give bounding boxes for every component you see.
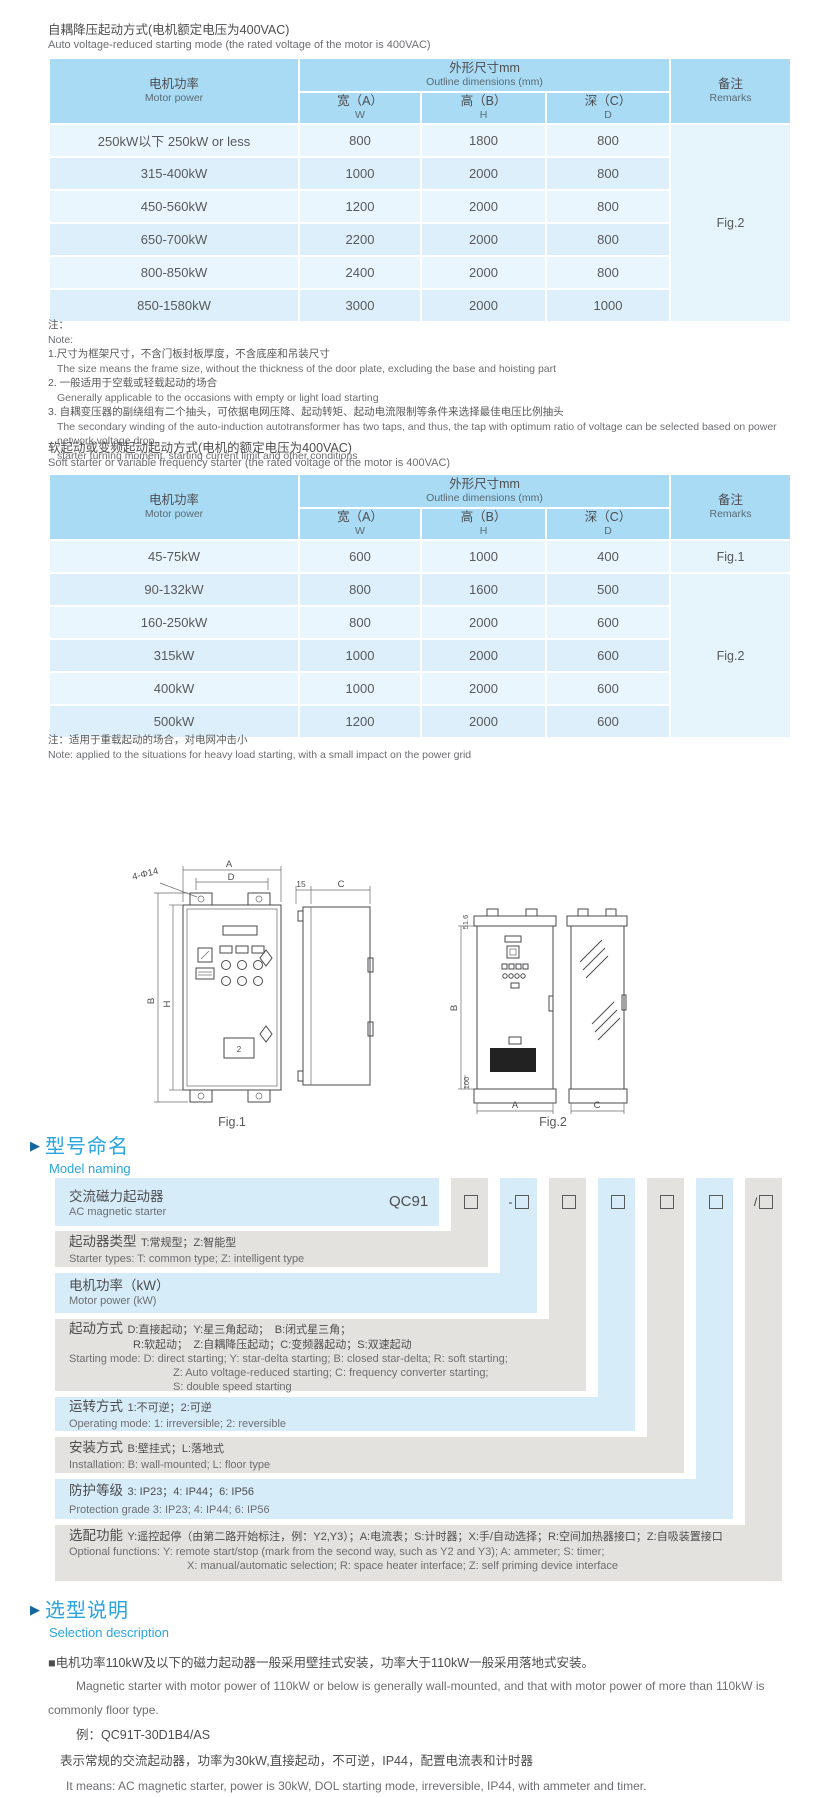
selection-heading-en: Selection description xyxy=(49,1625,800,1640)
model-row-protection-grade: 防护等级 3: IP23；4: IP44；6: IP56 Protection … xyxy=(55,1479,733,1519)
code-box-icon xyxy=(464,1195,478,1209)
section1-title-cn: 自耦降压起动方式(电机额定电压为400VAC) xyxy=(48,22,431,38)
model-naming-heading-en: Model naming xyxy=(49,1161,131,1176)
header-remarks: 备注 Remarks xyxy=(670,474,791,540)
header-outline: 外形尺寸mm Outline dimensions (mm) xyxy=(299,58,670,92)
svg-text:100: 100 xyxy=(462,1077,471,1090)
section2-title-en: Soft starter or variable frequency start… xyxy=(48,456,450,471)
note-item: 1.尺寸为框架尺寸，不含门板封板厚度，不含底座和吊装尺寸 xyxy=(48,347,798,362)
note2-en: Note: applied to the situations for heav… xyxy=(48,748,798,763)
product-name-cn: 交流磁力起动器 xyxy=(69,1182,439,1205)
table-header-row: 电机功率 Motor power 外形尺寸mm Outline dimensio… xyxy=(49,58,791,92)
header-height: 高（B）H xyxy=(421,92,546,124)
note-item: The size means the frame size, without t… xyxy=(48,362,798,377)
fig2-side-view: C xyxy=(567,909,627,1114)
svg-text:15: 15 xyxy=(296,879,306,889)
model-row-optional-functions: 选配功能 Y:遥控起停（由第二路开始标注，例：Y2,Y3）；A:电流表；S:计时… xyxy=(55,1525,782,1581)
code-box-icon xyxy=(709,1195,723,1209)
square-bullet-icon: ■ xyxy=(48,1656,56,1670)
fig2-label: Fig.2 xyxy=(539,1115,567,1129)
model-naming-heading-cn: 型号命名 xyxy=(45,1136,129,1158)
model-row-installation: 安装方式 B:壁挂式；L:落地式 Installation: B: wall-m… xyxy=(55,1437,684,1473)
code-box-1 xyxy=(451,1178,488,1226)
selection-p1-cn: ■电机功率110kW及以下的磁力起动器一般采用壁挂式安装，功率大于110kW一般… xyxy=(48,1652,800,1674)
note-label-cn: 注： xyxy=(48,318,798,333)
header-height: 高（B）H xyxy=(421,508,546,540)
code-box-icon xyxy=(611,1195,625,1209)
soft-starter-dimensions-table: 电机功率 Motor power 外形尺寸mm Outline dimensio… xyxy=(48,473,792,739)
selection-p1-en: Magnetic starter with motor power of 110… xyxy=(48,1674,800,1722)
note-item: 3. 自耦变压器的副绕组有二个抽头，可依据电网压降、起动转矩、起动电流限制等条件… xyxy=(48,405,798,420)
model-code-stripe xyxy=(696,1178,733,1519)
selection-p2-cn: 表示常规的交流起动器，功率为30kW,直接起动，不可逆，IP44，配置电流表和计… xyxy=(60,1749,800,1774)
selection-heading-cn: 选型说明 xyxy=(45,1600,129,1622)
svg-text:B: B xyxy=(449,1005,460,1011)
remark-fig1: Fig.1 xyxy=(670,540,791,573)
table-header-row: 电机功率 Motor power 外形尺寸mm Outline dimensio… xyxy=(49,474,791,508)
note-label-en: Note: xyxy=(48,333,798,348)
code-box-6 xyxy=(696,1178,733,1226)
auto-reduced-dimensions-table: 电机功率 Motor power 外形尺寸mm Outline dimensio… xyxy=(48,57,792,323)
svg-text:C: C xyxy=(594,1100,601,1111)
svg-text:H: H xyxy=(162,1000,173,1007)
section2-title: 软起动或变频起动起动方式(电机的额定电压为400VAC) Soft starte… xyxy=(48,440,450,471)
model-naming-heading: ▶型号命名 Model naming xyxy=(30,1130,131,1176)
svg-text:51.6: 51.6 xyxy=(461,915,470,930)
header-depth: 深（C）D xyxy=(546,508,670,540)
code-box-icon xyxy=(759,1195,773,1209)
table-row: 250kW以下 250kW or less 800 1800 800 Fig.2 xyxy=(49,124,791,157)
selection-example: 例：QC91T-30D1B4/AS xyxy=(76,1722,800,1749)
model-row-starter-type: 起动器类型 T:常规型；Z:智能型 Starter types: T: comm… xyxy=(55,1231,488,1267)
svg-text:C: C xyxy=(338,879,345,890)
code-box-icon xyxy=(515,1195,529,1209)
triangle-bullet-icon: ▶ xyxy=(30,1138,40,1153)
table-row: 45-75kW 600 1000 400 Fig.1 xyxy=(49,540,791,573)
code-box-2: - xyxy=(500,1178,537,1226)
selection-p2-en: It means: AC magnetic starter, power is … xyxy=(66,1774,800,1797)
svg-text:4-Φ14: 4-Φ14 xyxy=(131,866,159,883)
svg-text:A: A xyxy=(226,859,233,870)
code-box-5 xyxy=(647,1178,684,1226)
code-box-icon xyxy=(660,1195,674,1209)
note-item: 2. 一般适用于空载或轻载起动的场合 xyxy=(48,376,798,391)
section1-title: 自耦降压起动方式(电机额定电压为400VAC) Auto voltage-red… xyxy=(48,22,431,53)
svg-text:D: D xyxy=(228,872,235,883)
code-box-7: / xyxy=(745,1178,782,1226)
header-remarks: 备注 Remarks xyxy=(670,58,791,124)
product-name-en: AC magnetic starter xyxy=(69,1205,439,1219)
header-motor-power: 电机功率 Motor power xyxy=(49,474,299,540)
header-motor-power: 电机功率 Motor power xyxy=(49,58,299,124)
note-item: Generally applicable to the occasions wi… xyxy=(48,391,798,406)
header-width: 宽（A）W xyxy=(299,508,421,540)
section2-title-cn: 软起动或变频起动起动方式(电机的额定电压为400VAC) xyxy=(48,440,450,456)
svg-text:A: A xyxy=(512,1100,519,1111)
model-product-row: 交流磁力起动器 AC magnetic starter xyxy=(55,1178,439,1226)
selection-section: ▶选型说明 Selection description ■电机功率110kW及以… xyxy=(30,1594,800,1797)
model-row-starting-mode: 起动方式 D:直接起动；Y:星三角起动； B:闭式星三角； R:软起动； Z:自… xyxy=(55,1319,586,1391)
header-width: 宽（A）W xyxy=(299,92,421,124)
triangle-bullet-icon: ▶ xyxy=(30,1602,40,1617)
code-box-3 xyxy=(549,1178,586,1226)
fig1-side-view: 15 C xyxy=(296,879,373,1085)
fig1-label: Fig.1 xyxy=(218,1115,246,1129)
svg-text:B: B xyxy=(146,998,157,1004)
datasheet-page: 自耦降压起动方式(电机额定电压为400VAC) Auto voltage-red… xyxy=(0,0,830,1797)
outline-drawings: A D 4-Φ14 2 xyxy=(0,790,830,1135)
remark-fig2: Fig.2 xyxy=(670,124,791,322)
fig2-front-view: 51.6 B 100 A xyxy=(449,909,556,1114)
model-code-stripe xyxy=(745,1178,782,1581)
model-row-motor-power: 电机功率（kW） Motor power (kW) xyxy=(55,1273,537,1313)
note2-cn: 注：适用于重载起动的场合，对电网冲击小 xyxy=(48,733,798,748)
model-code: QC91 xyxy=(389,1193,428,1210)
header-depth: 深（C）D xyxy=(546,92,670,124)
svg-text:2: 2 xyxy=(237,1045,242,1054)
code-box-4 xyxy=(598,1178,635,1226)
section1-title-en: Auto voltage-reduced starting mode (the … xyxy=(48,38,431,53)
code-box-icon xyxy=(562,1195,576,1209)
table-row: 90-132kW 800 1600 500 Fig.2 xyxy=(49,573,791,606)
model-row-operating-mode: 运转方式 1:不可逆；2:可逆 Operating mode: 1: irrev… xyxy=(55,1397,635,1431)
model-naming-table: 交流磁力起动器 AC magnetic starter QC91 - / 起动器… xyxy=(55,1178,782,1581)
note2-block: 注：适用于重载起动的场合，对电网冲击小 Note: applied to the… xyxy=(48,733,798,762)
header-outline: 外形尺寸mm Outline dimensions (mm) xyxy=(299,474,670,508)
remark-fig2: Fig.2 xyxy=(670,573,791,738)
fig1-front-view: A D 4-Φ14 2 xyxy=(131,859,281,1102)
